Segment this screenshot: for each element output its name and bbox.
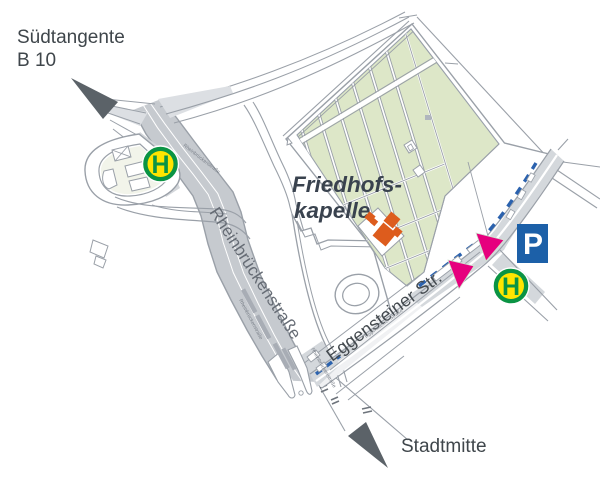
svg-text:P: P	[523, 228, 543, 261]
svg-text:B 10: B 10	[17, 50, 56, 71]
svg-text:Südtangente: Südtangente	[17, 27, 125, 48]
svg-text:kapelle: kapelle	[294, 198, 370, 223]
svg-text:Friedhofs-: Friedhofs-	[292, 172, 402, 197]
svg-text:Stadtmitte: Stadtmitte	[401, 436, 487, 457]
svg-text:H: H	[151, 151, 169, 179]
svg-text:H: H	[502, 273, 520, 301]
